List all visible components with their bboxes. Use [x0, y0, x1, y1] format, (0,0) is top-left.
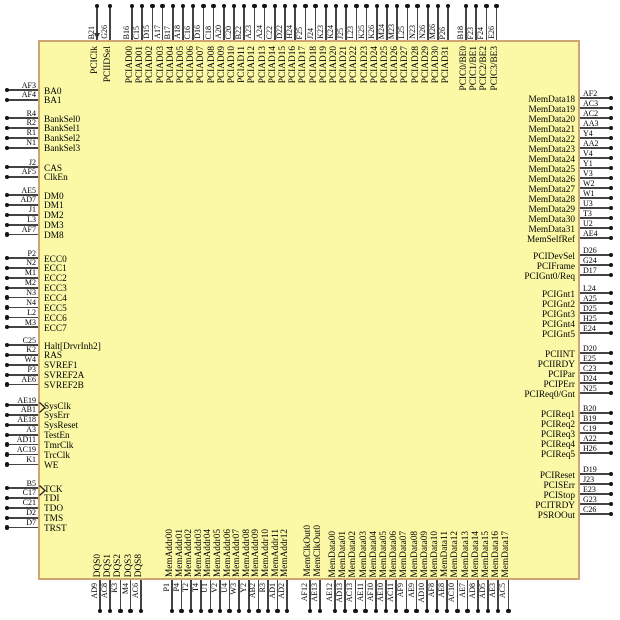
pin-number: AD13: [335, 583, 344, 603]
pin-number: AF2: [583, 89, 597, 98]
pin-number: J23: [583, 475, 594, 484]
pin-label: PCIReset: [540, 471, 575, 481]
pin-dot: [199, 609, 203, 613]
pin-label: MemData31: [529, 225, 575, 235]
pin-number: K25: [357, 25, 366, 39]
pin-dot: [384, 609, 388, 613]
pin-number: U1: [200, 583, 209, 593]
pin-number: AF3: [2, 81, 36, 90]
pin-number: T4: [191, 583, 200, 592]
pin-number: AF8: [427, 583, 436, 597]
pin-number: K3: [110, 583, 119, 593]
pin-label: PCIC3/BE3: [491, 46, 501, 90]
pin-number: L24: [583, 284, 596, 293]
pin-number: AE9: [407, 583, 416, 598]
pin-number: M4: [121, 583, 130, 594]
pin-number: C22: [265, 26, 274, 39]
pin-number: B22: [234, 26, 243, 39]
pin-number: AF4: [2, 90, 36, 99]
pin-dot: [140, 4, 144, 8]
pin-dot: [108, 609, 112, 613]
pin-number: L3: [2, 215, 36, 224]
pin-dot: [344, 4, 348, 8]
pin-label: BA0: [44, 87, 62, 97]
pin-dot: [609, 126, 613, 130]
pin-number: AE8: [437, 583, 446, 598]
pin-number: AC13: [345, 583, 354, 602]
pin-dot: [609, 176, 613, 180]
pin-number: N25: [583, 384, 597, 393]
pin-dot: [609, 482, 613, 486]
pin-label: PCIGnt2: [542, 300, 575, 310]
pin-number: D26: [583, 246, 597, 255]
pin-label: PCIReq4: [541, 440, 575, 450]
pin-number: A20: [214, 25, 223, 39]
pin-dot: [436, 4, 440, 8]
pin-dot: [179, 609, 183, 613]
pin-number: W1: [583, 189, 595, 198]
pin-label: SVREF1: [44, 361, 78, 371]
pin-label: RAS: [44, 351, 62, 361]
pin-dot: [609, 156, 613, 160]
pin-label: TMS: [44, 514, 63, 524]
pin-number: AD2: [277, 583, 286, 599]
pinout-diagram: B21PCIClkG26PCIIDSelB16PCIAD00C15PCIAD01…: [0, 0, 620, 620]
pin-dot: [609, 301, 613, 305]
pin-label: PCIIDSel: [104, 46, 114, 82]
pin-label: BA1: [44, 96, 62, 106]
pin-label: PCIAD02: [146, 46, 156, 83]
pin-label: PCIAD24: [371, 46, 381, 83]
pin-label: PCIAD31: [442, 46, 452, 83]
pin-dot: [130, 4, 134, 8]
pin-label: PCIAD09: [218, 46, 228, 83]
pin-number: N4: [2, 298, 36, 307]
pin-label: MemData22: [529, 135, 575, 145]
pin-number: AF12: [300, 583, 309, 601]
pin-dot: [313, 4, 317, 8]
pin-number: C26: [583, 505, 596, 514]
pin-label: MemAddr12: [281, 529, 291, 577]
pin-dot: [227, 609, 231, 613]
pin-label: PCIAD13: [259, 46, 269, 83]
pin-dot: [98, 609, 102, 613]
pin-number: AE5: [2, 186, 36, 195]
pin-label: PCIAD22: [350, 46, 360, 83]
pin-number: W4: [2, 355, 36, 364]
pin-label: SVREF2A: [44, 371, 84, 381]
pin-number: AF5: [2, 167, 36, 176]
pin-number: C15: [132, 26, 141, 39]
clock-arrow-icon: [94, 33, 100, 39]
pin-dot: [256, 609, 260, 613]
pin-number: G26: [100, 25, 109, 39]
pin-dot: [609, 146, 613, 150]
pin-dot: [283, 4, 287, 8]
pin-label: MemData27: [529, 185, 575, 195]
pin-label: DM1: [44, 201, 64, 211]
pin-number: AE4: [583, 229, 598, 238]
pin-number: AD1: [268, 583, 277, 599]
pin-dot: [232, 4, 236, 8]
clock-chevron-icon: [39, 483, 46, 494]
pin-number: R4: [2, 109, 36, 118]
pin-dot: [237, 609, 241, 613]
pin-dot: [506, 609, 510, 613]
pin-dot: [415, 4, 419, 8]
pin-dot: [139, 609, 143, 613]
pin-label: PCIReq2: [541, 420, 575, 430]
pin-label: PCIFrame: [537, 262, 575, 272]
pin-label: ECC6: [44, 314, 67, 324]
pin-number: N2: [2, 258, 36, 267]
pin-label: PCIAD27: [401, 46, 411, 83]
pin-number: A17: [153, 25, 162, 39]
pin-number: H25: [583, 314, 597, 323]
pin-number: C18: [204, 26, 213, 39]
pin-number: AB2: [248, 583, 257, 598]
pin-number: H24: [285, 25, 294, 39]
pin-label: PCIINT: [545, 350, 575, 360]
pin-number: R2: [2, 118, 36, 127]
pin-dot: [354, 4, 358, 8]
pin-line: [319, 580, 321, 611]
pin-dot: [414, 609, 418, 613]
pin-number: N26: [418, 25, 427, 39]
pin-dot: [609, 291, 613, 295]
pin-number: N23: [408, 25, 417, 39]
pin-number: J25: [336, 28, 345, 39]
pin-dot: [425, 609, 429, 613]
pin-number: V3: [583, 169, 593, 178]
pin-number: M23: [387, 24, 396, 39]
pin-number: A23: [244, 25, 253, 39]
pin-label: PCIAD14: [269, 46, 279, 83]
pin-dot: [609, 273, 613, 277]
pin-dot: [353, 609, 357, 613]
pin-number: D24: [583, 374, 597, 383]
pin-label: TCK: [44, 485, 63, 495]
pin-dot: [128, 609, 132, 613]
pin-number: J24: [306, 28, 315, 39]
pin-label: TrcClk: [44, 451, 70, 461]
pin-label: MemData28: [529, 195, 575, 205]
pin-number: C20: [224, 26, 233, 39]
pin-label: PSROOut: [538, 511, 575, 521]
pin-number: AA2: [583, 139, 599, 148]
pin-number: AD11: [2, 435, 36, 444]
pin-label: PCIReq1: [541, 410, 575, 420]
pin-dot: [374, 609, 378, 613]
pin-number: M26: [428, 24, 437, 39]
pin-label: DQS8: [135, 554, 145, 577]
pin-number: C19: [583, 424, 596, 433]
pin-dot: [170, 609, 174, 613]
pin-number: A24: [255, 25, 264, 39]
pin-label: DM8: [44, 231, 64, 241]
pin-number: AA3: [583, 119, 599, 128]
pin-number: K24: [326, 25, 335, 39]
pin-label: SVREF2B: [44, 381, 84, 391]
pin-number: G23: [583, 495, 597, 504]
pin-number: E24: [583, 324, 596, 333]
pin-label: PCIPar: [548, 370, 575, 380]
pin-label: MemData26: [529, 175, 575, 185]
pin-number: D20: [583, 344, 597, 353]
pin-dot: [435, 609, 439, 613]
pin-dot: [609, 351, 613, 355]
pin-dot: [609, 166, 613, 170]
pin-dot: [455, 609, 459, 613]
pin-dot: [171, 4, 175, 8]
pin-number: B16: [122, 26, 131, 39]
pin-number: C17: [2, 488, 36, 497]
pin-number: AD10: [417, 583, 426, 603]
pin-label: MemClkOut0: [314, 525, 324, 577]
pin-dot: [208, 609, 212, 613]
pin-number: D19: [583, 465, 597, 474]
pin-dot: [474, 4, 478, 8]
pin-label: PCIGnt5: [542, 330, 575, 340]
pin-dot: [247, 609, 251, 613]
pin-dot: [486, 609, 490, 613]
pin-label: PCIGnt0/Req: [524, 272, 575, 282]
pin-number: M1: [2, 268, 36, 277]
pin-label: MemData13: [462, 531, 472, 577]
pin-line: [447, 7, 449, 40]
pin-number: AE6: [2, 375, 36, 384]
pin-dot: [189, 609, 193, 613]
pin-number: P26: [438, 27, 447, 39]
pin-number: AC2: [583, 109, 598, 118]
pin-dot: [426, 4, 430, 8]
pin-number: T2: [181, 583, 190, 592]
pin-dot: [308, 609, 312, 613]
pin-label: BankSel1: [44, 124, 80, 134]
pin-number: H26: [583, 444, 597, 453]
pin-label: PCIC2/BE2: [480, 46, 490, 90]
pin-label: ECC4: [44, 294, 67, 304]
pin-label: PCIAD03: [157, 46, 167, 83]
pin-number: B17: [163, 26, 172, 39]
pin-dot: [609, 96, 613, 100]
pin-number: K26: [367, 25, 376, 39]
pin-label: TestEn: [44, 431, 70, 441]
pin-dot: [609, 206, 613, 210]
pin-number: AB1: [2, 405, 36, 414]
pin-number: AD5: [478, 583, 487, 599]
pin-number: AC19: [2, 445, 36, 454]
chip-body: [38, 40, 580, 580]
pin-label: MemData03: [360, 531, 370, 577]
pin-number: U4: [220, 583, 229, 593]
pin-dot: [343, 609, 347, 613]
pin-number: K1: [2, 455, 36, 464]
pin-label: BankSel0: [44, 115, 80, 125]
pin-line: [286, 580, 288, 611]
pin-number: B19: [583, 414, 596, 423]
pin-dot: [609, 492, 613, 496]
pin-number: L25: [397, 26, 406, 39]
pin-number: AE13: [310, 583, 319, 602]
pin-number: F23: [466, 27, 475, 39]
pin-dot: [609, 196, 613, 200]
pin-dot: [465, 609, 469, 613]
pin-label: MemData20: [529, 115, 575, 125]
pin-label: PCIGnt3: [542, 310, 575, 320]
pin-dot: [262, 4, 266, 8]
pin-number: P4: [172, 583, 181, 591]
pin-label: TDI: [44, 494, 60, 504]
pin-dot: [181, 4, 185, 8]
pin-dot: [318, 609, 322, 613]
pin-number: AE19: [2, 396, 36, 405]
pin-label: Halt[DrvrInh2]: [44, 342, 101, 352]
pin-dot: [609, 331, 613, 335]
pin-label: PCIGnt4: [542, 320, 575, 330]
pin-number: N3: [2, 288, 36, 297]
pin-label: MemSelfRef: [527, 235, 575, 245]
pin-label: PCIReq5: [541, 450, 575, 460]
pin-number: AE11: [356, 583, 365, 601]
pin-number: Y4: [583, 129, 593, 138]
pin-label: PCIAD29: [422, 46, 432, 83]
pin-number: AC8: [100, 583, 109, 598]
pin-number: D17: [583, 266, 597, 275]
pin-label: ECC1: [44, 264, 67, 274]
pin-dot: [375, 4, 379, 8]
pin-dot: [609, 311, 613, 315]
pin-dot: [160, 4, 164, 8]
pin-number: D2: [2, 508, 36, 517]
pin-number: V4: [583, 149, 593, 158]
pin-number: D22: [275, 25, 284, 39]
pin-dot: [609, 136, 613, 140]
pin-dot: [609, 431, 613, 435]
pin-dot: [609, 106, 613, 110]
pin-label: ECC5: [44, 304, 67, 314]
pin-number: AC11: [386, 583, 395, 602]
pin-label: PCIReq0/Gnt: [524, 390, 575, 400]
pin-label: MemData21: [529, 125, 575, 135]
pin-label: PCIClk: [91, 46, 101, 74]
pin-label: MemData19: [529, 105, 575, 115]
pin-label: ClkEn: [44, 173, 68, 183]
pin-label: PCIAD28: [412, 46, 422, 83]
pin-label: MemData30: [529, 215, 575, 225]
pin-dot: [211, 4, 215, 8]
pin-number: AD9: [90, 583, 99, 599]
pin-dot: [252, 4, 256, 8]
pin-label: CAS: [44, 164, 62, 174]
pin-label: TmrClk: [44, 441, 73, 451]
pin-dot: [242, 4, 246, 8]
pin-label: MemData12: [451, 531, 461, 577]
pin-dot: [191, 4, 195, 8]
pin-dot: [293, 4, 297, 8]
pin-label: PCIAD04: [167, 46, 177, 83]
pin-dot: [609, 472, 613, 476]
pin-number: D15: [142, 25, 151, 39]
pin-label: MemData09: [421, 531, 431, 577]
pin-number: E23: [583, 485, 596, 494]
pin-label: SysErr: [44, 411, 69, 421]
pin-label: WE: [44, 461, 58, 471]
pin-label: PCIReq3: [541, 430, 575, 440]
pin-number: C23: [583, 364, 596, 373]
pin-dot: [266, 609, 270, 613]
pin-label: MemData02: [349, 531, 359, 577]
pin-label: TRST: [44, 524, 67, 534]
pin-label: MemData18: [529, 95, 575, 105]
pin-number: AC10: [447, 583, 456, 602]
pin-number: T3: [583, 209, 592, 218]
pin-dot: [385, 4, 389, 8]
pin-label: MemData08: [411, 531, 421, 577]
pin-label: SysReset: [44, 421, 78, 431]
pin-dot: [476, 609, 480, 613]
pin-label: PCIAD18: [310, 46, 320, 83]
pin-number: AE3: [488, 583, 497, 598]
pin-number: U2: [583, 219, 593, 228]
pin-label: PCISErr: [543, 481, 575, 491]
pin-number: A22: [583, 434, 597, 443]
pin-dot: [609, 321, 613, 325]
pin-number: K2: [2, 345, 36, 354]
pin-number: W3: [229, 583, 238, 595]
pin-dot: [118, 609, 122, 613]
pin-label: BankSel3: [44, 144, 80, 154]
pin-number: J2: [2, 158, 36, 167]
pin-dot: [324, 4, 328, 8]
pin-label: BankSel2: [44, 134, 80, 144]
pin-line: [140, 580, 142, 611]
pin-label: TDO: [44, 504, 63, 514]
pin-number: A3: [2, 425, 36, 434]
pin-dot: [273, 4, 277, 8]
pin-number: AF10: [366, 583, 375, 601]
pin-number: M3: [2, 318, 36, 327]
pin-label: PCIAD12: [248, 46, 258, 83]
pin-number: N1: [2, 138, 36, 147]
pin-label: PCIStop: [543, 491, 575, 501]
pin-label: DM2: [44, 211, 64, 221]
pin-number: AC5: [498, 583, 507, 598]
pin-dot: [494, 4, 498, 8]
pin-number: F25: [295, 27, 304, 39]
pin-label: ECC2: [44, 274, 67, 284]
pin-number: M2: [2, 278, 36, 287]
pin-number: AC6: [131, 583, 140, 598]
pin-dot: [333, 609, 337, 613]
pin-dot: [609, 263, 613, 267]
pin-number: P1: [162, 583, 171, 591]
pin-label: DQS3: [125, 554, 135, 577]
pin-number: AE10: [376, 583, 385, 602]
pin-dot: [609, 441, 613, 445]
pin-dot: [609, 216, 613, 220]
pin-label: DM0: [44, 192, 64, 202]
pin-label: MemData14: [472, 531, 482, 577]
pin-number: C21: [2, 498, 36, 507]
pin-label: ECC0: [44, 255, 67, 265]
pin-dot: [394, 609, 398, 613]
pin-dot: [609, 361, 613, 365]
pin-dot: [404, 609, 408, 613]
pin-label: DQS2: [114, 554, 124, 577]
pin-label: PCIDevSel: [533, 252, 575, 262]
pin-number: P3: [2, 365, 36, 374]
